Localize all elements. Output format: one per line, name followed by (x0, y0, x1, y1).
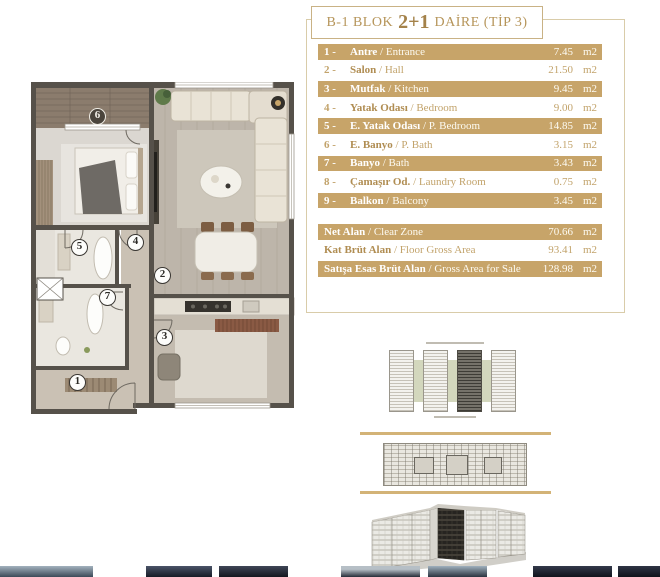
row-area: 128.98 (529, 263, 573, 275)
row-area: 70.66 (529, 226, 573, 238)
row-area: 14.85 (529, 120, 573, 132)
room-badge-ensuite: 5 (71, 239, 88, 256)
row-name: Net Alan / Clear Zone (324, 226, 529, 238)
row-name: E. Banyo / P. Bath (350, 139, 529, 151)
row-name: E. Yatak Odası / P. Bedroom (350, 120, 529, 132)
divider-rule-bottom (360, 491, 551, 494)
core-block (414, 457, 434, 474)
table-row-8: 8 - Çamaşır Od. / Laundry Room 0.75 m2 (318, 174, 602, 190)
row-name: Yatak Odası / Bedroom (350, 102, 529, 114)
row-unit: m2 (573, 263, 597, 275)
gallery-thumbnail[interactable] (341, 566, 420, 577)
floor-plate-key (383, 443, 527, 486)
summary-row-floor-gross: Kat Brüt Alan / Floor Gross Area 93.41 m… (318, 243, 602, 259)
gallery-thumbnail[interactable] (618, 566, 660, 577)
gallery-thumbnail[interactable] (533, 566, 612, 577)
row-area: 3.43 (529, 157, 573, 169)
site-plan-caption-top (426, 342, 484, 344)
row-area: 21.50 (529, 64, 573, 76)
block-plan-b (423, 350, 448, 412)
gallery-thumbnail[interactable] (0, 566, 93, 577)
row-unit: m2 (573, 176, 597, 188)
row-unit: m2 (573, 64, 597, 76)
row-number: 4 - (324, 102, 350, 114)
row-unit: m2 (573, 244, 597, 256)
row-name: Antre / Entrance (350, 46, 529, 58)
row-area: 9.45 (529, 83, 573, 95)
room-badge-entrance: 1 (69, 374, 86, 391)
row-name: Çamaşır Od. / Laundry Room (350, 176, 529, 188)
row-area: 3.45 (529, 195, 573, 207)
row-name: Kat Brüt Alan / Floor Gross Area (324, 244, 529, 256)
table-row-4: 4 - Yatak Odası / Bedroom 9.00 m2 (318, 100, 602, 116)
row-unit: m2 (573, 102, 597, 114)
row-unit: m2 (573, 139, 597, 151)
row-number: 1 - (324, 46, 350, 58)
row-name: Mutfak / Kitchen (350, 83, 529, 95)
site-plan-caption-bottom (434, 416, 476, 418)
row-area: 0.75 (529, 176, 573, 188)
block-plan-c (491, 350, 516, 412)
table-row-2: 2 - Salon / Hall 21.50 m2 (318, 63, 602, 79)
core-block (446, 455, 468, 475)
table-row-7: 7 - Banyo / Bath 3.43 m2 (318, 156, 602, 172)
row-number: 6 - (324, 139, 350, 151)
block-plan-a (389, 350, 414, 412)
row-area: 93.41 (529, 244, 573, 256)
room-area-table: 1 - Antre / Entrance 7.45 m2 2 - Salon /… (318, 44, 602, 211)
row-number: 5 - (324, 120, 350, 132)
row-unit: m2 (573, 195, 597, 207)
row-number: 3 - (324, 83, 350, 95)
row-number: 8 - (324, 176, 350, 188)
title-room-count: 2+1 (398, 11, 429, 34)
table-row-5: 5 - E. Yatak Odası / P. Bedroom 14.85 m2 (318, 118, 602, 134)
room-badge-kitchen: 3 (156, 329, 173, 346)
divider-rule-top (360, 432, 551, 435)
unit-title-box: B-1 BLOK 2+1 DAİRE (TİP 3) (311, 6, 543, 39)
row-area: 7.45 (529, 46, 573, 58)
room-badge-hall: 2 (154, 267, 171, 284)
row-unit: m2 (573, 83, 597, 95)
row-name: Banyo / Bath (350, 157, 529, 169)
row-unit: m2 (573, 120, 597, 132)
block-plan-b1-highlighted (457, 350, 482, 412)
gallery-thumbnail[interactable] (219, 566, 288, 577)
room-badge-bedroom: 4 (127, 234, 144, 251)
row-unit: m2 (573, 157, 597, 169)
row-number: 2 - (324, 64, 350, 76)
row-number: 7 - (324, 157, 350, 169)
row-name: Satışa Esas Brüt Alan / Gross Area for S… (324, 263, 529, 275)
summary-row-net: Net Alan / Clear Zone 70.66 m2 (318, 224, 602, 240)
row-unit: m2 (573, 226, 597, 238)
area-summary-table: Net Alan / Clear Zone 70.66 m2 Kat Brüt … (318, 224, 602, 280)
core-block (484, 457, 502, 474)
row-name: Salon / Hall (350, 64, 529, 76)
row-number: 9 - (324, 195, 350, 207)
room-badge-bath: 7 (99, 289, 116, 306)
row-name: Balkon / Balcony (350, 195, 529, 207)
building-render (368, 496, 528, 572)
table-row-9: 9 - Balkon / Balcony 3.45 m2 (318, 193, 602, 209)
table-row-6: 6 - E. Banyo / P. Bath 3.15 m2 (318, 137, 602, 153)
table-row-3: 3 - Mutfak / Kitchen 9.45 m2 (318, 81, 602, 97)
summary-row-sale-gross: Satışa Esas Brüt Alan / Gross Area for S… (318, 261, 602, 277)
floor-plan-page: 6 5 4 2 7 3 1 B-1 BLOK 2+1 DAİRE (TİP 3)… (0, 0, 660, 577)
row-area: 3.15 (529, 139, 573, 151)
row-area: 9.00 (529, 102, 573, 114)
row-unit: m2 (573, 46, 597, 58)
site-plan-key (388, 340, 523, 420)
gallery-thumbnail[interactable] (146, 566, 212, 577)
floor-plan-drawing (25, 82, 295, 422)
gallery-thumbnail[interactable] (428, 566, 487, 577)
title-unit-type: DAİRE (TİP 3) (434, 15, 527, 31)
table-row-1: 1 - Antre / Entrance 7.45 m2 (318, 44, 602, 60)
title-block-name: B-1 BLOK (326, 15, 393, 31)
room-badge-balcony: 6 (89, 108, 106, 125)
apartment-floor-plan: 6 5 4 2 7 3 1 (25, 82, 295, 422)
